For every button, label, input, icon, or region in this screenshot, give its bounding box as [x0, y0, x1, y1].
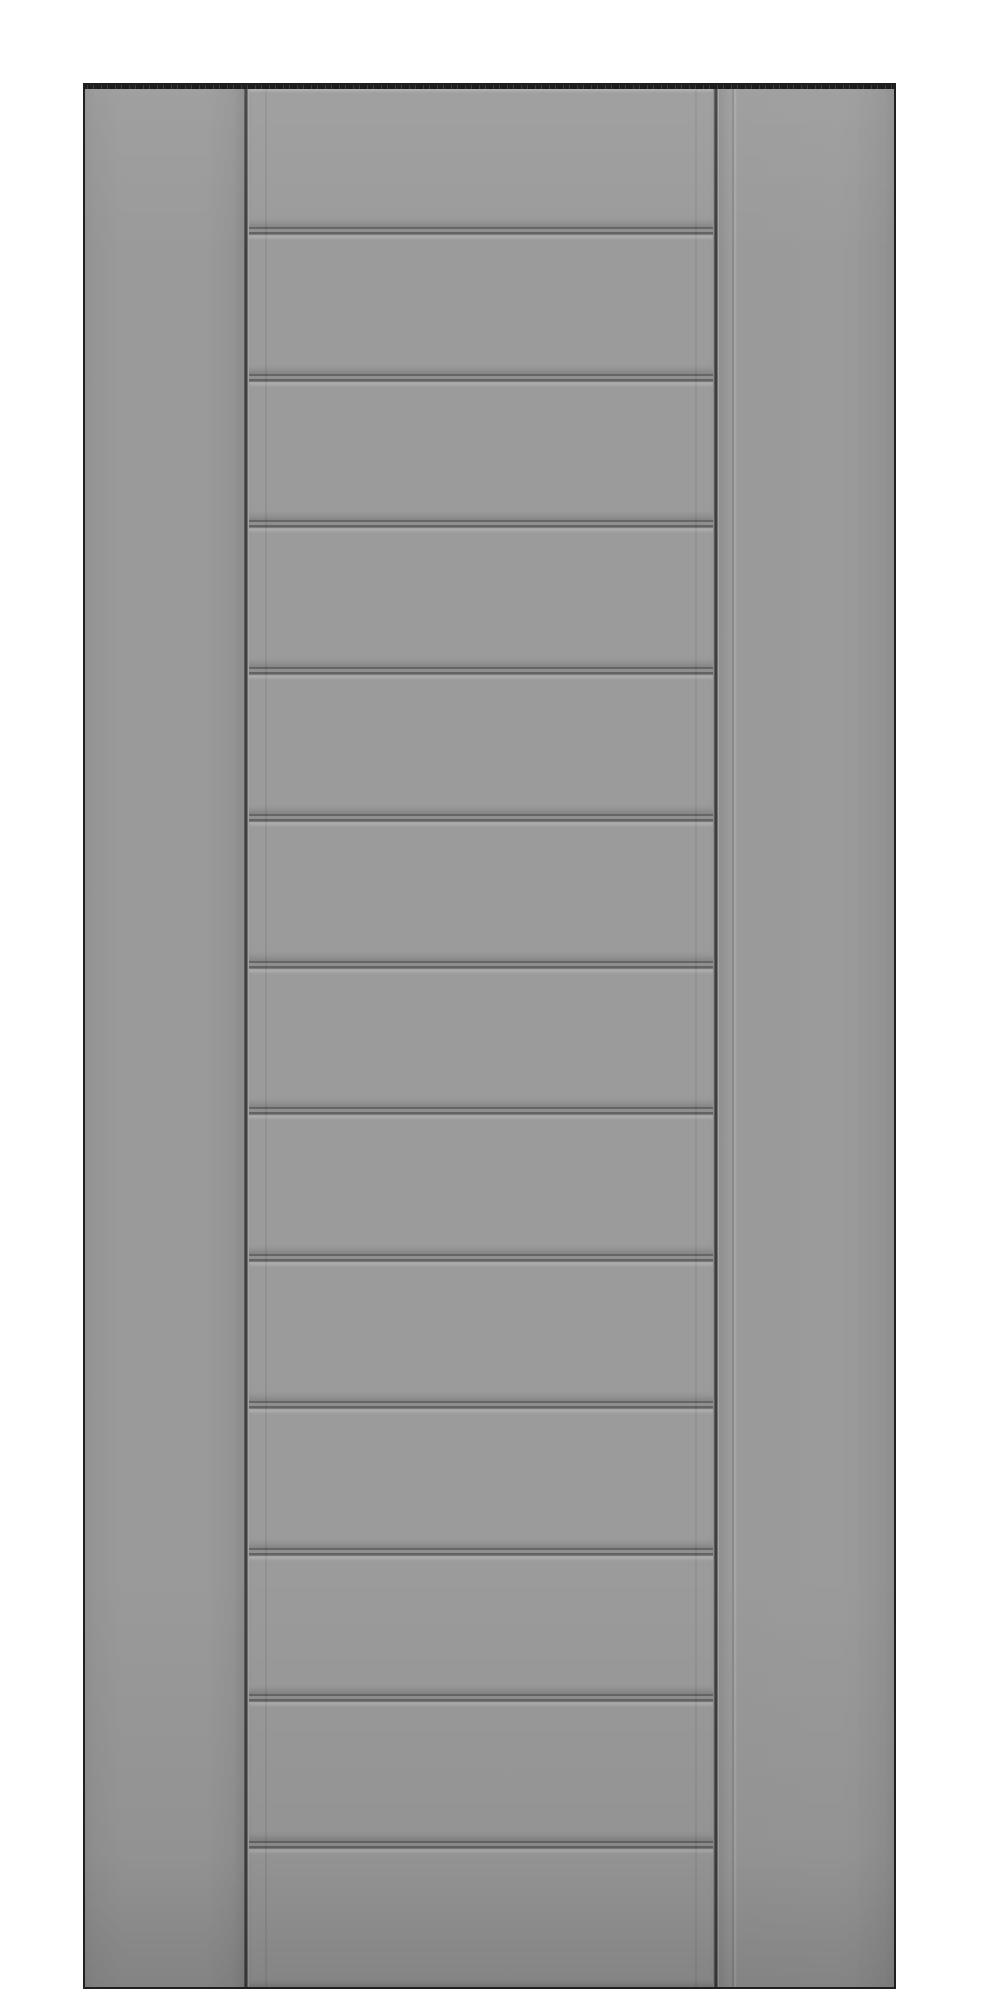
door-face	[85, 89, 894, 1987]
plank-groove	[249, 519, 713, 529]
plank	[249, 1850, 713, 1987]
plank	[249, 1557, 713, 1694]
plank-groove	[249, 960, 713, 970]
plank	[249, 1263, 713, 1400]
left-stile	[85, 89, 243, 1987]
plank	[249, 823, 713, 960]
plank	[249, 676, 713, 813]
plank-area	[249, 89, 713, 1987]
plank-groove	[249, 1253, 713, 1263]
plank-groove	[249, 1547, 713, 1557]
plank	[249, 383, 713, 520]
plank-groove	[249, 1693, 713, 1703]
plank-groove	[249, 226, 713, 236]
plank-groove	[249, 813, 713, 823]
plank	[249, 89, 713, 226]
plank	[249, 970, 713, 1107]
right-stile-reveal-line	[732, 89, 737, 1987]
plank	[249, 529, 713, 666]
photo-background	[0, 0, 983, 2002]
plank-groove	[249, 666, 713, 676]
right-stile	[719, 89, 894, 1987]
plank-groove	[249, 1106, 713, 1116]
plank	[249, 1703, 713, 1840]
plank-groove	[249, 1400, 713, 1410]
plank	[249, 1116, 713, 1253]
door	[83, 83, 896, 1989]
plank-groove	[249, 373, 713, 383]
plank-groove	[249, 1840, 713, 1850]
plank	[249, 236, 713, 373]
plank	[249, 1410, 713, 1547]
